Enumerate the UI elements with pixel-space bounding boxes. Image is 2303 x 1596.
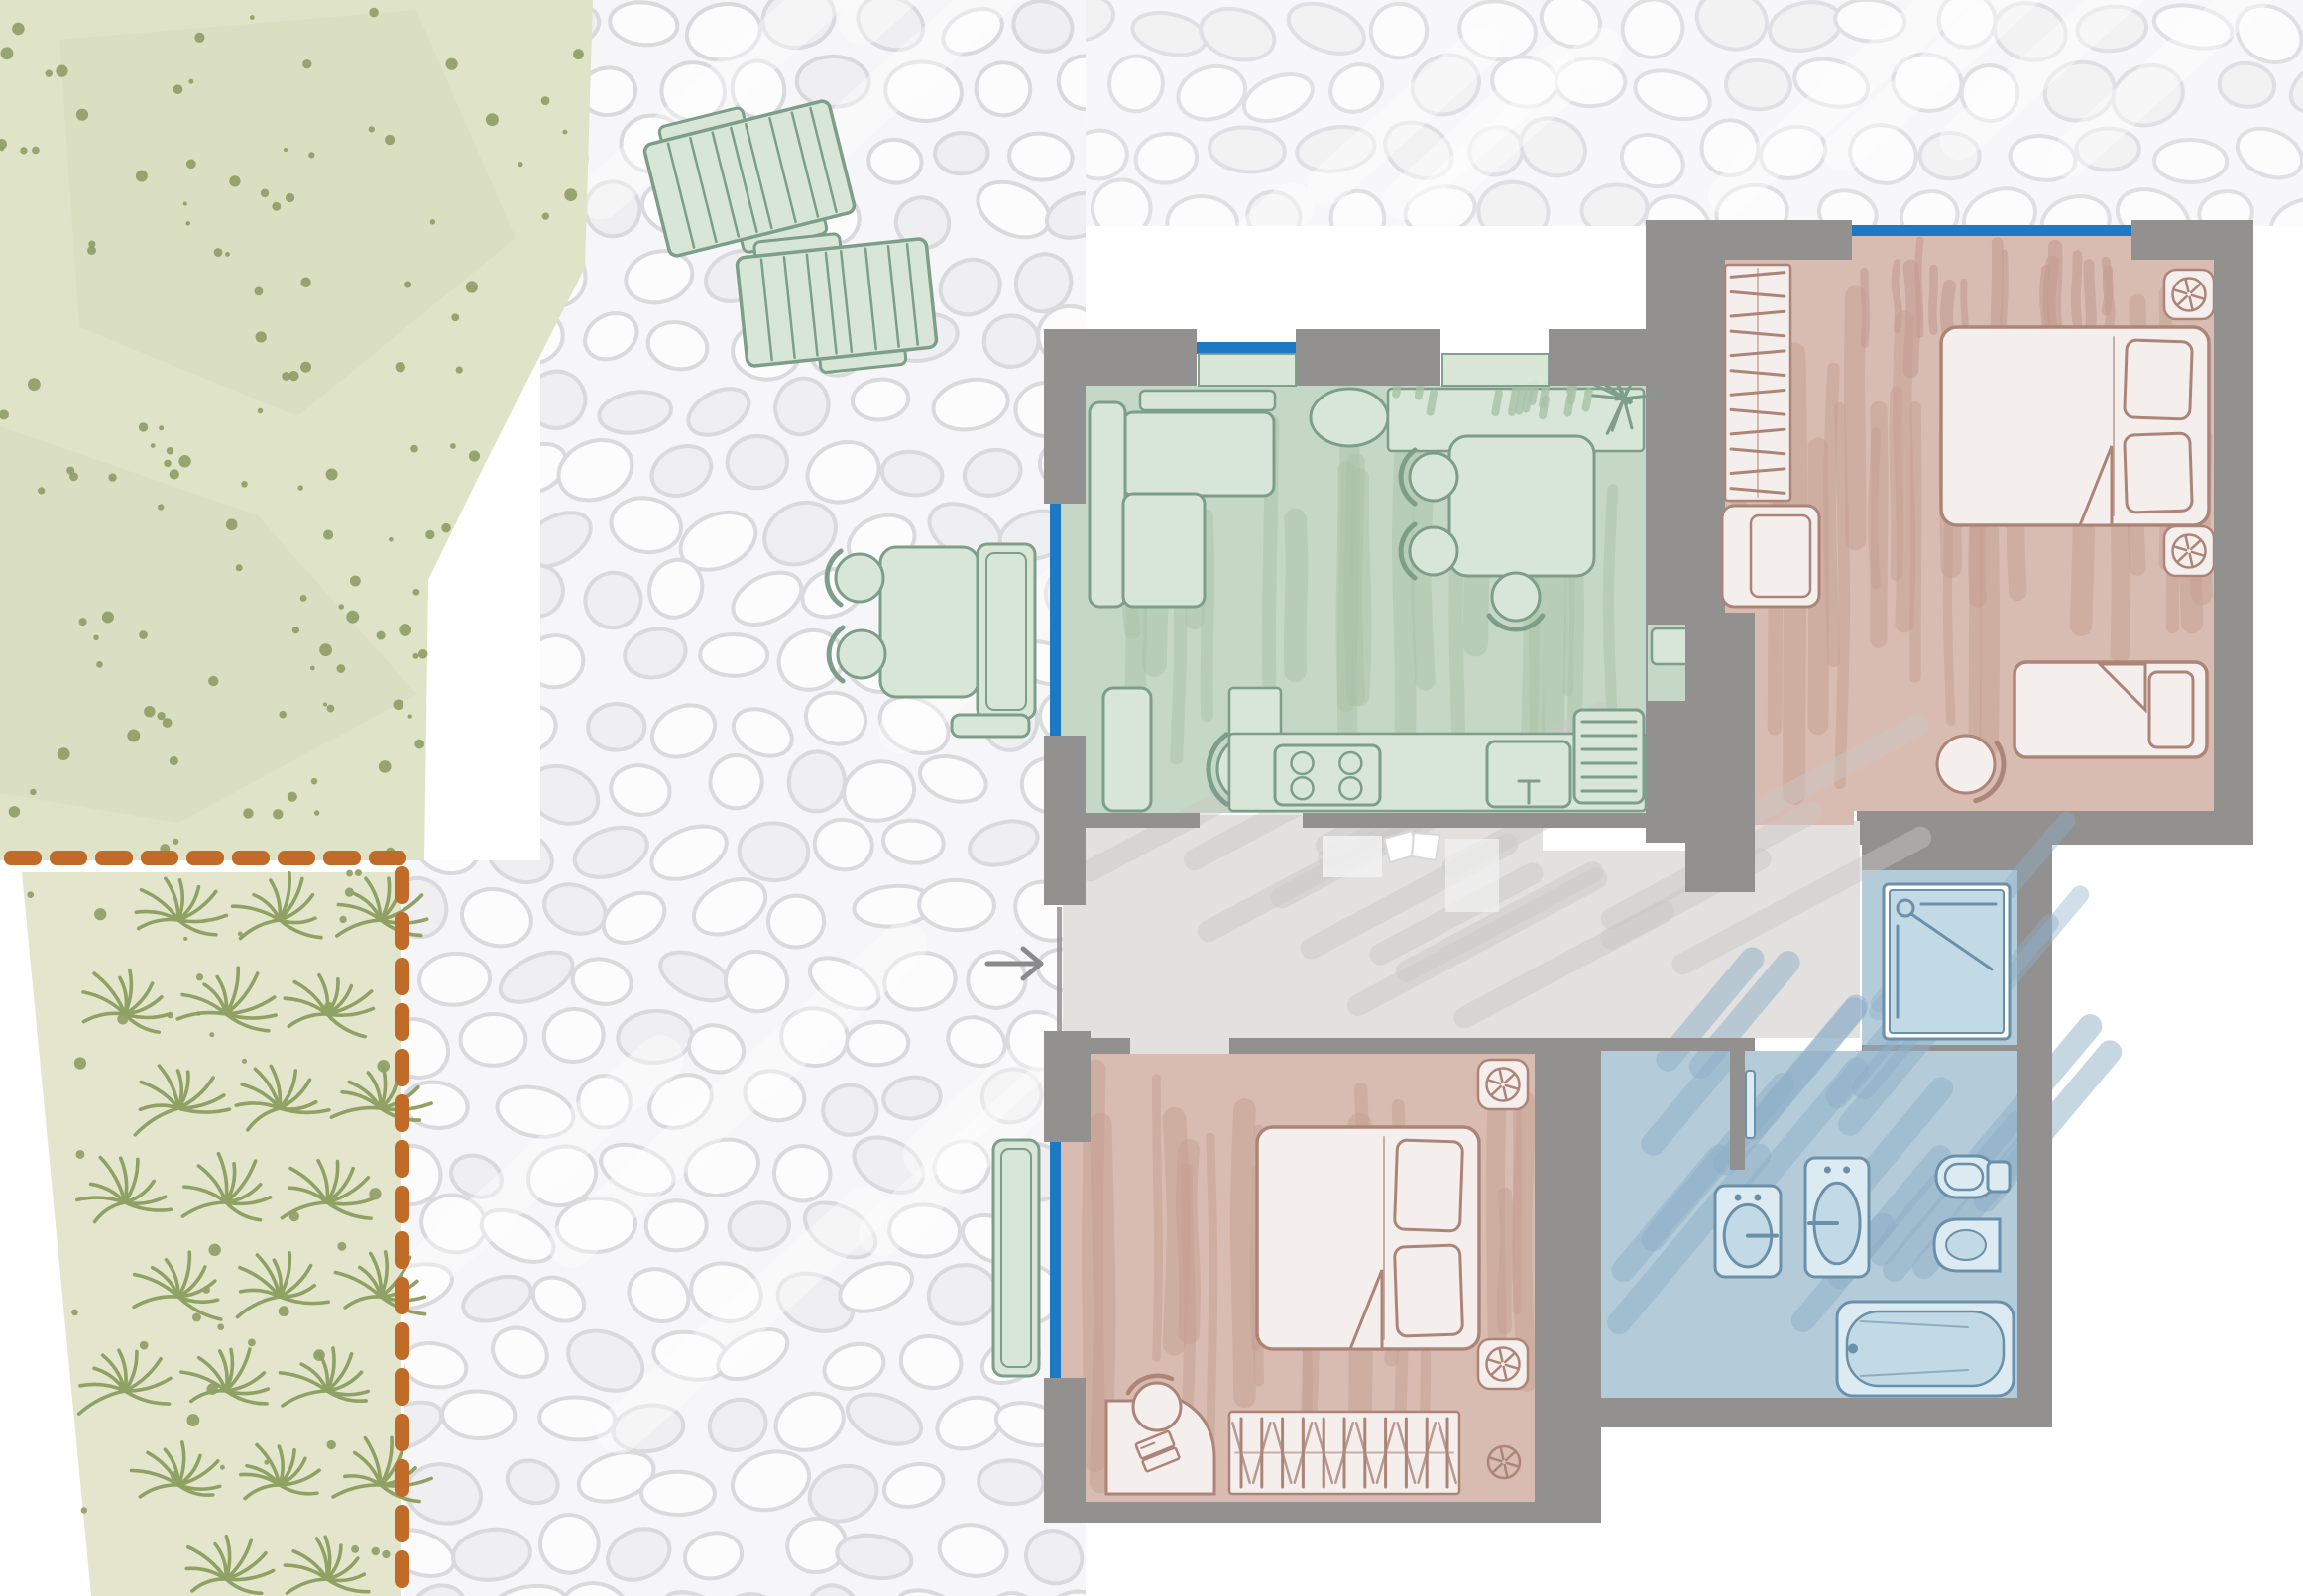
floor-plan-canvas bbox=[0, 0, 2303, 1596]
fan-stool-icon bbox=[1478, 1060, 1528, 1109]
entrance-threshold bbox=[1057, 907, 1062, 1031]
field-border-top bbox=[4, 851, 406, 865]
outdoor-bench-foot bbox=[952, 715, 1029, 737]
fan-stool-icon bbox=[1478, 1339, 1528, 1389]
window-marker bbox=[1852, 225, 2131, 236]
bedroom1-double-bed bbox=[1941, 327, 2209, 525]
sofa-console bbox=[1140, 391, 1275, 410]
bidet-icon bbox=[1934, 1219, 2000, 1271]
outdoor-bench-lower bbox=[993, 1140, 1039, 1376]
window-recess-sill bbox=[1442, 354, 1549, 386]
floor-plan-page bbox=[0, 0, 2303, 1596]
toilet-icon bbox=[1936, 1156, 2010, 1197]
bedroom1-armchair-seat bbox=[1751, 515, 1810, 597]
kitchen-sink bbox=[1487, 741, 1570, 807]
stove-burners-icon bbox=[1275, 745, 1380, 805]
sofa-back bbox=[1090, 402, 1125, 607]
sofa-chaise bbox=[1123, 412, 1274, 496]
dining-chair-1 bbox=[1401, 450, 1457, 504]
outdoor-table bbox=[880, 547, 979, 697]
dining-chair-2 bbox=[1401, 524, 1457, 578]
sink-icon bbox=[1715, 1186, 1781, 1277]
fan-stool-icon bbox=[2164, 526, 2214, 576]
dishwasher-drainer bbox=[1574, 710, 1644, 803]
living-room-floor-window-strip bbox=[1061, 504, 1086, 736]
fan-stool-icon bbox=[2164, 270, 2214, 319]
round-pouf bbox=[1311, 389, 1388, 446]
window-marker bbox=[1197, 342, 1296, 354]
window-marker bbox=[1050, 1142, 1061, 1378]
hall-doormat bbox=[1445, 839, 1499, 912]
side-cabinet bbox=[1103, 688, 1151, 811]
window-sill bbox=[1199, 354, 1296, 386]
bathroom-door-leaf bbox=[1746, 1071, 1755, 1138]
shower-head-icon bbox=[1884, 884, 2010, 1039]
bedroom1-single-bed bbox=[2015, 662, 2207, 757]
bedroom2-double-bed bbox=[1257, 1127, 1479, 1349]
bathtub-icon bbox=[1837, 1302, 2014, 1396]
bedroom2-wardrobe bbox=[1229, 1412, 1459, 1494]
hall-slippers bbox=[1412, 833, 1439, 860]
bedroom1-wardrobe bbox=[1725, 265, 1790, 501]
outdoor-chair-1 bbox=[827, 551, 883, 605]
outdoor-chair-2 bbox=[829, 627, 885, 681]
hall-doormat bbox=[1323, 836, 1382, 877]
window-marker bbox=[1050, 504, 1061, 736]
sofa-seat bbox=[1123, 494, 1205, 607]
dining-table bbox=[1449, 436, 1594, 576]
dining-chair-3 bbox=[1489, 573, 1543, 629]
sink-icon bbox=[1805, 1158, 1869, 1277]
